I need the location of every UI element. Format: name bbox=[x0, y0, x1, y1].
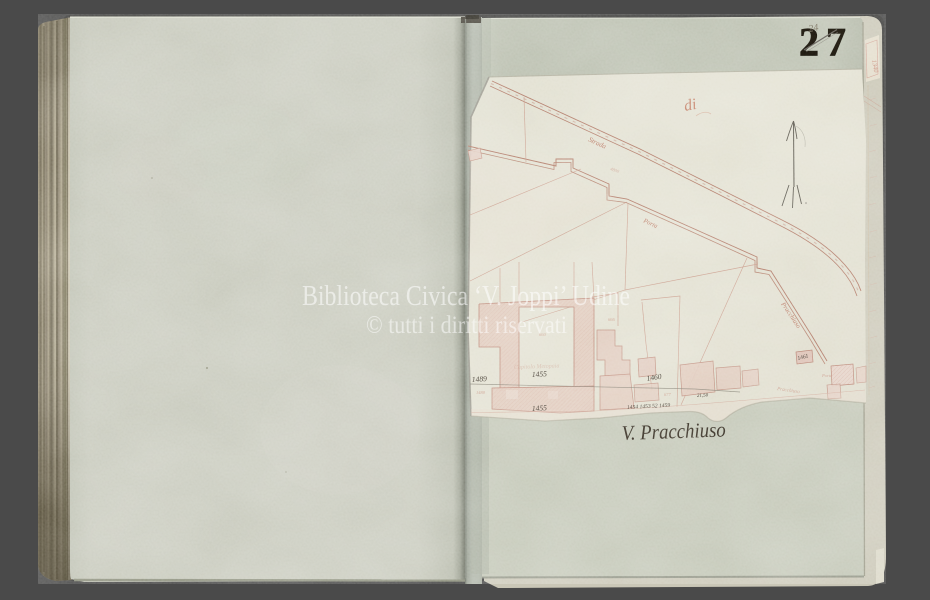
svg-text:Biblioteca Civica ‘V. Joppi’ U: Biblioteca Civica ‘V. Joppi’ Udine bbox=[302, 280, 630, 312]
svg-text:© tutti i diritti riservati: © tutti i diritti riservati bbox=[366, 312, 567, 339]
